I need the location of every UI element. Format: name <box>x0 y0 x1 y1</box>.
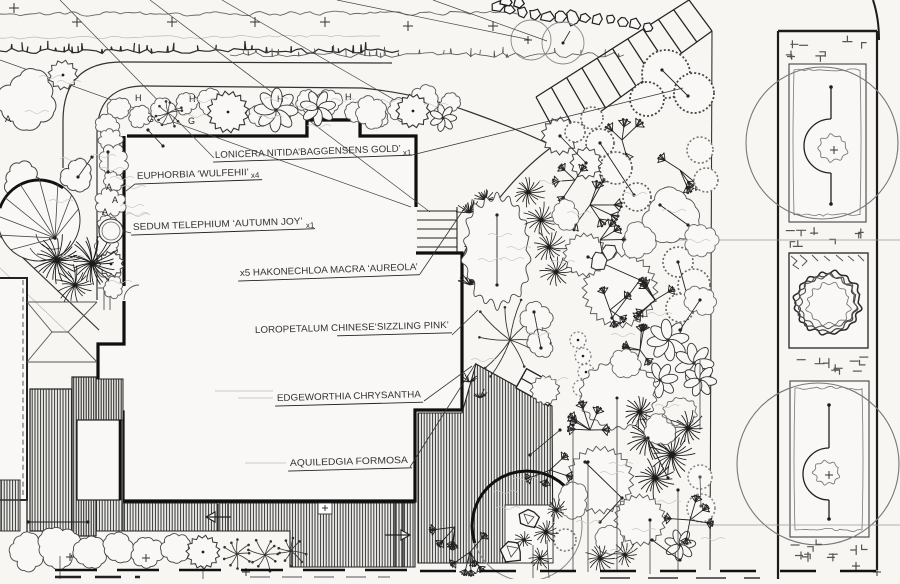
svg-text:x1: x1 <box>403 148 412 157</box>
svg-text:G: G <box>147 114 154 124</box>
svg-text:H: H <box>189 94 196 104</box>
svg-text:H: H <box>135 93 142 103</box>
svg-text:A: A <box>112 195 118 205</box>
svg-text:A: A <box>102 207 108 217</box>
svg-text:A: A <box>5 114 11 124</box>
svg-text:G: G <box>188 116 195 126</box>
svg-text:A: A <box>106 182 112 192</box>
svg-text:x4: x4 <box>251 171 260 180</box>
